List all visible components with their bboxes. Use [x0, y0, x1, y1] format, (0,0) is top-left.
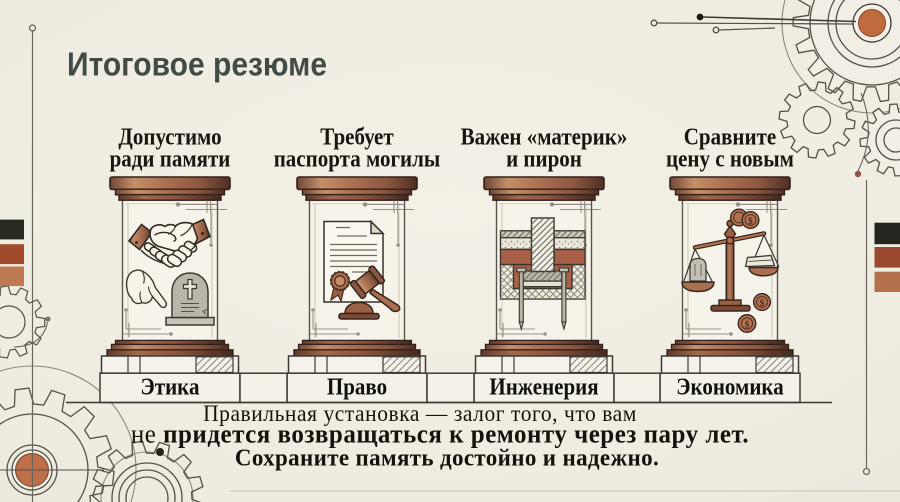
- svg-text:$: $: [745, 320, 750, 330]
- svg-text:$: $: [760, 298, 765, 308]
- svg-text:$: $: [748, 216, 753, 226]
